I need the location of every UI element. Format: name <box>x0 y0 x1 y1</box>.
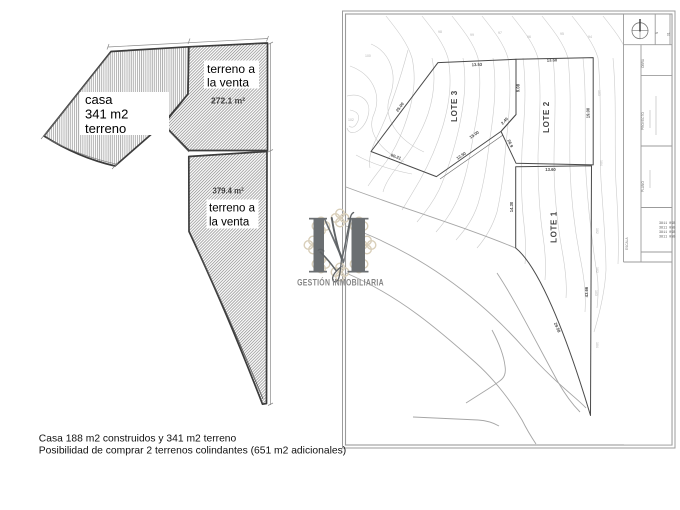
svg-text:PLANO: PLANO <box>641 181 645 192</box>
svg-text:98: 98 <box>438 30 442 34</box>
svg-text:PROYECTO: PROYECTO <box>641 112 645 130</box>
svg-text:Casa 188 m2 construidos y 341: Casa 188 m2 construidos y 341 m2 terreno <box>39 434 237 445</box>
svg-text:94: 94 <box>588 35 592 39</box>
svg-text:96: 96 <box>527 35 531 39</box>
svg-text:3811 05B: 3811 05B <box>659 227 675 231</box>
svg-text:01: 01 <box>667 32 671 36</box>
svg-text:OBRA: OBRA <box>641 58 645 68</box>
svg-text:GESTIÓN INMOBILIARIA: GESTIÓN INMOBILIARIA <box>297 275 384 288</box>
svg-text:Posibilidad de comprar 2 terre: Posibilidad de comprar 2 terrenos colind… <box>39 446 346 457</box>
svg-text:43.66: 43.66 <box>584 286 589 297</box>
svg-text:104: 104 <box>599 160 603 166</box>
svg-text:3811 05B: 3811 05B <box>659 236 675 240</box>
svg-text:13.60: 13.60 <box>545 167 556 172</box>
svg-text:272.1 m²: 272.1 m² <box>211 96 245 106</box>
svg-text:ESCALA: ESCALA <box>625 237 629 250</box>
svg-text:terreno a: terreno a <box>209 203 256 215</box>
svg-text:103: 103 <box>594 290 598 296</box>
svg-text:terreno a: terreno a <box>207 62 255 76</box>
svg-text:102: 102 <box>348 118 354 122</box>
svg-text:casa: casa <box>85 92 113 107</box>
svg-text:95: 95 <box>560 32 564 36</box>
svg-text:la venta: la venta <box>209 217 250 229</box>
svg-text:la venta: la venta <box>207 76 249 90</box>
svg-text:19.00: 19.00 <box>586 107 591 118</box>
svg-text:104: 104 <box>595 342 599 348</box>
svg-text:97: 97 <box>498 31 502 35</box>
svg-text:LOTE 1: LOTE 1 <box>550 211 559 243</box>
svg-text:terreno: terreno <box>85 121 126 136</box>
svg-text:3811 05B: 3811 05B <box>659 222 675 226</box>
svg-text:LOTE 2: LOTE 2 <box>542 101 551 133</box>
svg-text:14.30: 14.30 <box>509 201 514 212</box>
svg-text:9.08: 9.08 <box>516 83 521 92</box>
svg-text:100: 100 <box>365 54 371 58</box>
svg-text:103: 103 <box>597 90 601 96</box>
svg-text:13.60: 13.60 <box>547 57 558 62</box>
svg-text:102: 102 <box>595 228 599 234</box>
svg-text:99: 99 <box>470 33 474 37</box>
svg-text:341 m2: 341 m2 <box>85 107 128 122</box>
svg-text:LOTE 3: LOTE 3 <box>450 90 459 122</box>
svg-text:102: 102 <box>595 267 599 273</box>
svg-text:379.4 m²: 379.4 m² <box>213 186 245 195</box>
svg-text:3811 05B: 3811 05B <box>659 231 675 235</box>
svg-text:13.53: 13.53 <box>472 62 483 68</box>
